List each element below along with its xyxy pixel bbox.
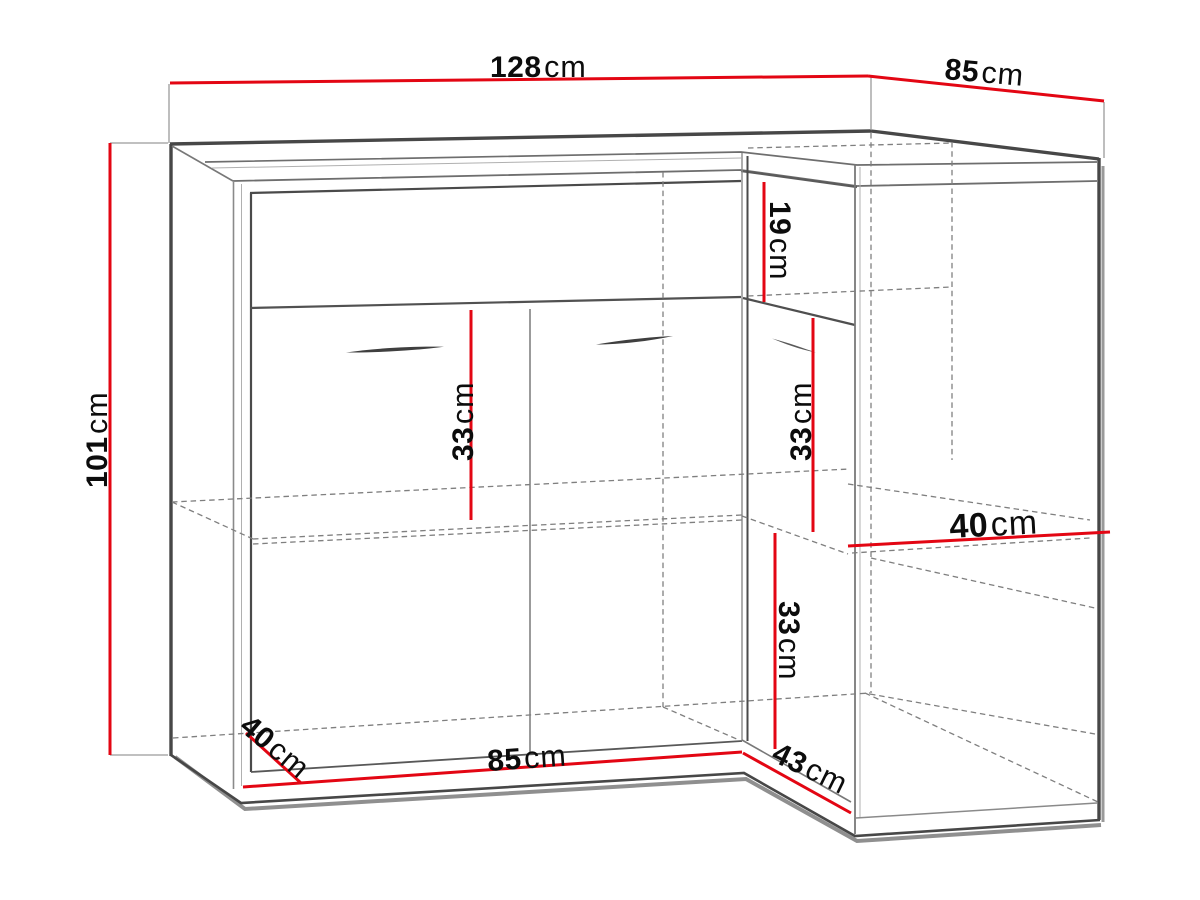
svg-text:40cm: 40cm xyxy=(948,503,1039,546)
svg-text:85cm: 85cm xyxy=(943,52,1025,93)
svg-text:33cm: 33cm xyxy=(446,381,480,461)
svg-text:19cm: 19cm xyxy=(763,201,797,281)
svg-text:128cm: 128cm xyxy=(490,50,587,84)
svg-text:101cm: 101cm xyxy=(80,391,114,488)
svg-text:85cm: 85cm xyxy=(486,739,568,778)
svg-text:33cm: 33cm xyxy=(784,381,818,461)
svg-text:33cm: 33cm xyxy=(772,601,806,681)
